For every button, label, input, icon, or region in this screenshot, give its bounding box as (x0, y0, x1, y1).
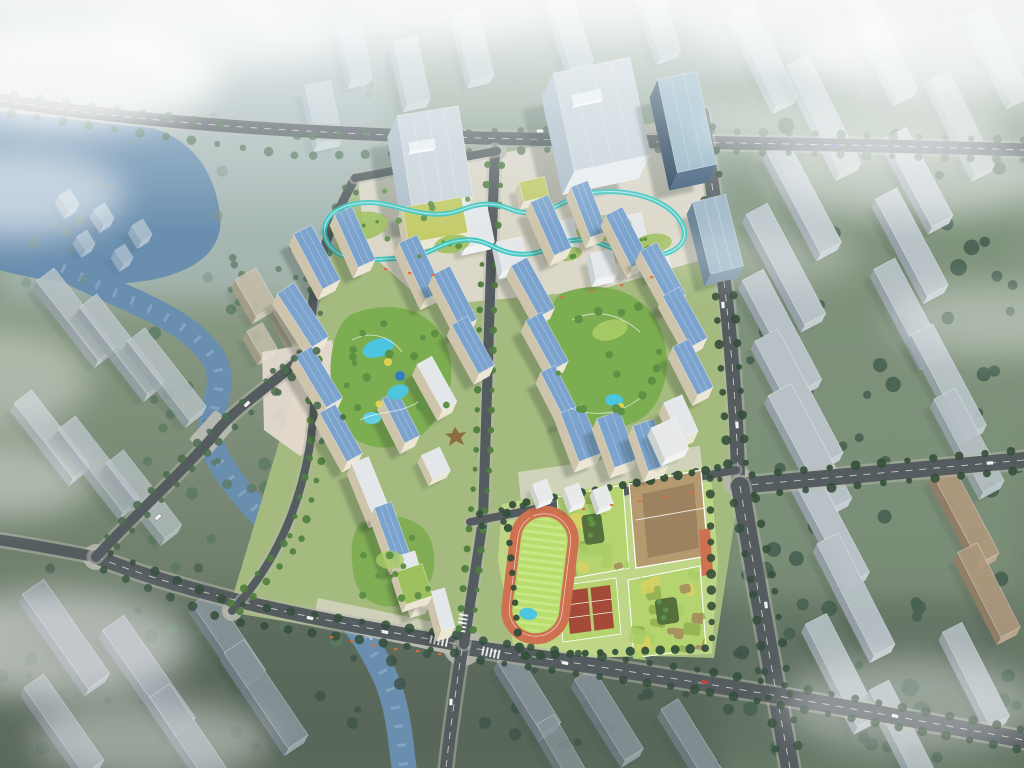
street-tree (673, 471, 683, 481)
street-tree (456, 625, 463, 632)
plaza-tree (291, 355, 298, 362)
street-tree (877, 458, 886, 467)
street-tree (762, 545, 770, 553)
street-tree (655, 645, 664, 654)
street-tree (458, 605, 465, 612)
street-tree (781, 682, 788, 689)
street-tree (1008, 467, 1017, 476)
shop-awning (560, 296, 563, 298)
street-tree (428, 647, 434, 653)
plaza-tree (270, 368, 276, 374)
street-tree (955, 452, 964, 461)
courtyard-tree (359, 592, 366, 599)
podium-tree (640, 238, 643, 241)
street-tree (719, 389, 726, 396)
car (986, 461, 993, 465)
street-tree (712, 293, 720, 301)
street-tree (1012, 744, 1021, 753)
shop-awning (690, 492, 693, 494)
street-tree (721, 435, 731, 445)
street-tree (512, 599, 518, 605)
street-tree (688, 470, 695, 477)
street-tree (144, 512, 151, 519)
street-tree (468, 506, 474, 512)
street-tree (737, 388, 743, 394)
courtyard-tree (612, 404, 621, 413)
street-tree (249, 593, 256, 600)
street-tree (714, 317, 721, 324)
street-tree (709, 668, 718, 677)
street-tree (450, 649, 459, 658)
podium-tree (569, 254, 574, 259)
street-tree (292, 514, 298, 520)
street-tree (715, 340, 724, 349)
street-tree (314, 478, 320, 484)
street-tree (685, 644, 695, 654)
street-tree (747, 575, 755, 583)
plaza-tree (275, 389, 282, 396)
podium-tree (643, 237, 647, 241)
street-tree (486, 468, 492, 474)
street-tree (133, 501, 142, 510)
courtyard-tree (410, 352, 418, 360)
street-tree (206, 428, 212, 434)
street-tree (267, 555, 274, 562)
street-tree (582, 650, 589, 657)
street-tree (756, 641, 766, 651)
shop-awning (438, 653, 441, 655)
street-tree (480, 262, 485, 267)
street-tree (130, 559, 136, 565)
street-tree (359, 619, 365, 625)
courtyard-tree (594, 307, 601, 314)
street-tree (461, 565, 469, 573)
car (721, 301, 725, 308)
street-tree (706, 474, 714, 482)
street-tree (619, 675, 628, 684)
street-tree (476, 656, 485, 665)
street-tree (488, 407, 495, 414)
street-tree (475, 567, 482, 574)
street-tree (575, 650, 582, 657)
street-tree (514, 628, 522, 636)
courtyard-tree (375, 573, 380, 578)
street-tree (290, 548, 297, 555)
street-tree (490, 307, 497, 314)
street-tree (511, 585, 517, 591)
plaza-tree (340, 414, 346, 420)
street-tree (460, 585, 467, 592)
courtyard-tree (431, 330, 439, 338)
street-tree (800, 466, 808, 474)
car (735, 421, 739, 428)
street-tree (466, 526, 473, 533)
street-tree (851, 460, 861, 470)
playground-accent (384, 358, 392, 366)
shop-awning (432, 274, 435, 276)
street-tree (757, 520, 765, 528)
street-tree (647, 660, 653, 666)
street-tree (738, 410, 747, 419)
shop-awning (350, 640, 353, 642)
street-tree (694, 666, 700, 672)
street-tree (236, 608, 244, 616)
street-tree (150, 567, 159, 576)
street-tree (475, 407, 480, 412)
street-tree (623, 657, 629, 663)
street-tree (476, 307, 483, 314)
street-tree (255, 571, 260, 576)
street-tree (705, 687, 714, 696)
street-tree (263, 378, 269, 384)
street-tree (707, 602, 716, 611)
street-tree (302, 515, 310, 523)
street-tree (748, 471, 755, 478)
street-tree (957, 472, 965, 480)
street-tree (709, 619, 715, 625)
street-tree (626, 647, 635, 656)
street-tree (709, 635, 715, 641)
street-tree (527, 643, 534, 650)
courtyard-tree (359, 330, 366, 337)
street-tree (286, 607, 295, 616)
street-tree (489, 387, 494, 392)
street-tree (334, 614, 343, 623)
plaza-tree (282, 367, 290, 375)
street-tree (771, 588, 778, 595)
street-tree (473, 447, 479, 453)
street-tree (210, 611, 219, 620)
street-tree (248, 410, 254, 416)
street-tree (507, 554, 514, 561)
plaza-tree (313, 347, 321, 355)
courtyard-tree (363, 373, 371, 381)
street-tree (707, 554, 715, 562)
street-tree (464, 545, 471, 552)
plaza-tree (319, 439, 325, 445)
street-tree (217, 594, 226, 603)
street-tree (513, 614, 519, 620)
street-tree (476, 327, 482, 333)
street-tree (981, 450, 988, 457)
street-tree (174, 481, 180, 487)
street-tree (749, 590, 757, 598)
school-courtyard-northeast (642, 483, 699, 558)
street-tree (733, 339, 741, 347)
street-tree (159, 497, 164, 502)
street-tree (707, 522, 714, 529)
courtyard-tree (648, 377, 656, 385)
street-tree (743, 460, 749, 466)
street-tree (776, 489, 783, 496)
street-tree (768, 571, 776, 579)
shop-awning (556, 512, 559, 514)
street-tree (100, 566, 108, 574)
street-tree (473, 467, 478, 472)
cloud (200, 1, 520, 49)
courtyard-tree (638, 391, 646, 399)
aerial-rendering (0, 0, 1024, 768)
street-tree (619, 481, 627, 489)
shop-awning (330, 636, 333, 638)
street-tree (287, 533, 292, 538)
courtyard-tree (385, 350, 394, 359)
street-tree (1007, 447, 1016, 456)
street-tree (318, 311, 324, 317)
street-tree (548, 666, 555, 673)
street-tree (355, 635, 365, 645)
street-tree (306, 455, 313, 462)
street-tree (104, 534, 109, 539)
courtyard-tree (574, 315, 583, 324)
street-tree (723, 459, 733, 469)
street-tree (667, 682, 674, 689)
street-tree (706, 490, 715, 499)
courtyard-tree (349, 353, 357, 361)
courtyard-tree (443, 402, 450, 409)
street-tree (479, 522, 486, 529)
street-tree (193, 439, 202, 448)
street-tree (166, 593, 175, 602)
courtyard-tree (634, 302, 643, 311)
street-tree (478, 281, 484, 287)
street-tree (284, 625, 293, 634)
street-tree (929, 454, 937, 462)
street-tree (381, 620, 390, 629)
courtyard-tree (344, 382, 350, 388)
street-tree (487, 427, 494, 434)
street-tree (551, 650, 560, 659)
street-tree (129, 528, 135, 534)
courtyard-tree (605, 351, 613, 359)
courtyard-tree (352, 360, 358, 366)
street-tree (729, 291, 737, 299)
plaza-tree (313, 402, 321, 410)
shop-awning (610, 504, 613, 506)
street-tree (854, 481, 862, 489)
courtyard-tree (661, 615, 666, 620)
cloud (660, 225, 860, 285)
street-tree (472, 607, 477, 612)
street-tree (227, 599, 235, 607)
street-tree (189, 465, 196, 472)
street-tree (214, 438, 222, 446)
street-tree (751, 494, 760, 503)
street-tree (263, 604, 272, 613)
street-tree (504, 524, 512, 532)
street-tree (706, 569, 716, 579)
street-tree (761, 668, 768, 675)
courtyard-tree (663, 607, 669, 613)
shop-awning (650, 276, 653, 278)
street-tree (732, 672, 741, 681)
street-tree (826, 465, 832, 471)
playground-accent (376, 401, 383, 408)
street-tree (490, 326, 497, 333)
courtyard-tree (360, 552, 367, 559)
street-tree (597, 649, 604, 656)
street-tree (707, 506, 715, 514)
plaza-tree (417, 254, 421, 258)
courtyard-tree (653, 364, 661, 372)
courtyard-tree (416, 403, 424, 411)
car (449, 698, 453, 705)
courtyard-tree (588, 533, 593, 538)
street-tree (612, 649, 618, 655)
courtyard-tree (400, 563, 406, 569)
street-tree (793, 741, 802, 750)
street-tree (232, 424, 239, 431)
street-tree (378, 638, 387, 647)
shop-awning (384, 268, 387, 270)
street-tree (501, 661, 507, 667)
street-tree (487, 447, 494, 454)
aerial-rendering-viewport (0, 0, 1024, 768)
street-tree (596, 673, 603, 680)
street-tree (714, 464, 721, 471)
street-tree (240, 584, 248, 592)
street-tree (778, 638, 787, 647)
street-tree (880, 480, 887, 487)
street-tree (188, 601, 198, 611)
street-tree (473, 426, 480, 433)
shop-awning (372, 644, 375, 646)
street-tree (502, 509, 511, 518)
street-tree (280, 540, 288, 548)
street-tree (514, 643, 524, 653)
street-tree (172, 576, 181, 585)
street-tree (827, 483, 837, 493)
street-tree (774, 468, 782, 476)
street-tree (671, 645, 680, 654)
street-tree (802, 487, 809, 494)
street-tree (506, 540, 513, 547)
courtyard-tree (420, 335, 426, 341)
street-tree (484, 488, 489, 493)
street-tree (717, 477, 722, 482)
courtyard-tree (354, 404, 361, 411)
courtyard-tree (380, 320, 387, 327)
courtyard-tree (392, 571, 398, 577)
street-tree (741, 550, 748, 557)
street-tree (731, 314, 740, 323)
deep-pool (395, 371, 405, 381)
street-tree (469, 626, 477, 634)
courtyard-tree (576, 406, 583, 413)
street-tree (721, 412, 729, 420)
street-tree (107, 550, 113, 556)
street-tree (236, 618, 245, 627)
street-tree (701, 644, 709, 652)
street-tree (566, 650, 574, 658)
street-tree (297, 494, 302, 499)
plaza-tree (385, 236, 391, 242)
street-tree (405, 623, 415, 633)
street-tree (194, 585, 204, 595)
street-tree (263, 578, 271, 586)
street-tree (670, 663, 678, 671)
street-tree (477, 546, 485, 554)
shop-awning (664, 496, 667, 498)
street-tree (509, 570, 515, 576)
street-tree (767, 718, 777, 728)
street-tree (736, 364, 742, 370)
shop-awning (620, 284, 623, 286)
street-tree (572, 670, 579, 677)
street-tree (307, 628, 316, 637)
street-tree (489, 346, 497, 354)
street-tree (740, 435, 749, 444)
street-tree (298, 535, 305, 542)
street-tree (983, 469, 991, 477)
shop-awning (416, 650, 419, 652)
courtyard-tree (556, 371, 561, 376)
street-tree (641, 647, 649, 655)
street-tree (403, 643, 410, 650)
street-tree (148, 487, 155, 494)
street-tree (309, 497, 315, 503)
street-tree (690, 684, 700, 694)
podium-tree (455, 244, 460, 249)
shop-awning (582, 508, 585, 510)
courtyard-tree (425, 586, 431, 592)
street-tree (509, 501, 516, 508)
street-tree (260, 622, 268, 630)
street-tree (783, 665, 791, 673)
street-tree (536, 650, 545, 659)
courtyard-tree (349, 346, 357, 354)
street-tree (642, 678, 651, 687)
shop-awning (638, 500, 641, 502)
street-tree (276, 563, 282, 569)
courtyard-tree (656, 349, 663, 356)
street-tree (122, 575, 130, 583)
street-tree (452, 630, 462, 640)
camo-patch (673, 628, 684, 640)
courtyard-tree (398, 594, 406, 602)
street-tree (118, 517, 126, 525)
street-tree (765, 694, 772, 701)
street-tree (930, 474, 939, 483)
street-tree (707, 539, 714, 546)
shop-awning (530, 516, 533, 518)
street-tree (752, 616, 761, 625)
street-tree (701, 466, 710, 475)
camo-patch (576, 543, 594, 558)
street-tree (521, 651, 530, 660)
courtyard-tree (589, 520, 596, 527)
street-tree (301, 474, 309, 482)
street-tree (144, 584, 152, 592)
camo-patch (683, 622, 702, 636)
street-tree (718, 365, 725, 372)
street-tree (475, 588, 480, 593)
street-tree (730, 499, 739, 508)
street-tree (178, 454, 187, 463)
shop-awning (394, 648, 397, 650)
street-tree (758, 678, 764, 684)
street-tree (479, 636, 488, 645)
street-tree (707, 585, 716, 594)
street-tree (773, 745, 780, 752)
street-tree (476, 510, 484, 518)
street-tree (503, 640, 511, 648)
street-tree (113, 543, 120, 550)
street-tree (754, 697, 761, 704)
street-tree (500, 518, 507, 525)
cloud (695, 91, 1015, 159)
street-tree (729, 691, 739, 701)
